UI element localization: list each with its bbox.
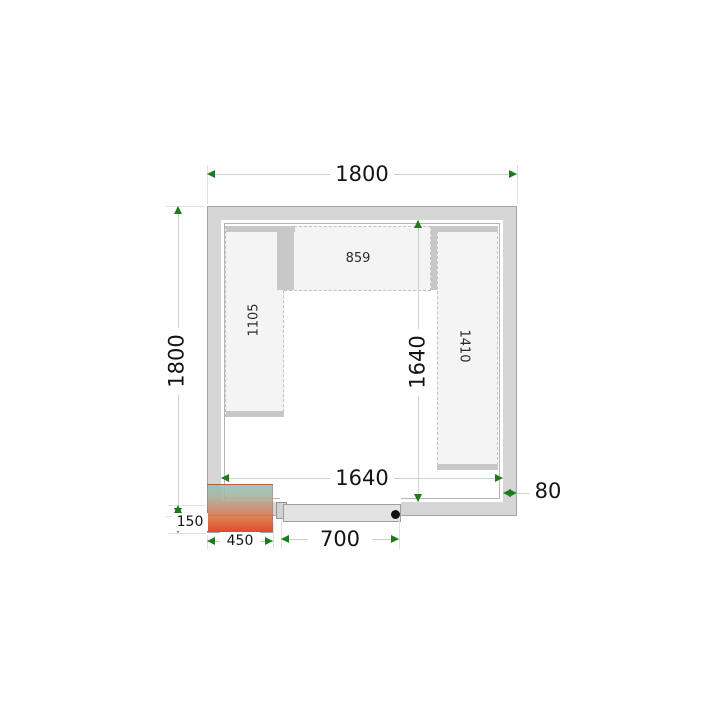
arrow-right-icon <box>509 170 517 178</box>
arrow-left-icon <box>207 170 215 178</box>
shelf-left-length-label: 1105 <box>248 303 261 336</box>
dim-unit-width-label: 450 <box>220 532 260 550</box>
shelf-right-length-label: 1410 <box>458 329 471 362</box>
arrow-left-icon <box>281 535 289 543</box>
dim-inner-height-label: 1640 <box>407 328 430 395</box>
door-handle-dot <box>391 510 400 519</box>
dim-outer-height-label: 1800 <box>166 327 189 394</box>
arrow-right-icon <box>265 537 273 545</box>
door-leaf <box>283 504 401 522</box>
arrow-right-icon <box>495 474 503 482</box>
floor-plan: 1105 859 1410 1800 1800 1640 1640 80 150… <box>0 0 720 720</box>
extension-line <box>517 165 518 204</box>
arrow-up-icon <box>174 206 182 214</box>
extension-line <box>168 533 206 534</box>
extension-line <box>166 206 204 207</box>
extension-line <box>281 519 282 549</box>
cooling-unit-heatmap <box>207 484 273 533</box>
arrow-left-icon <box>221 474 229 482</box>
extension-line <box>399 519 400 549</box>
dim-inner-width-label: 1640 <box>330 466 394 490</box>
arrow-up-icon <box>414 220 422 228</box>
arrow-down-icon <box>414 494 422 502</box>
dim-door-width-label: 700 <box>308 527 372 551</box>
shelf-top-length-label: 859 <box>338 249 378 267</box>
dim-wall-thickness-label: 80 <box>529 479 567 503</box>
arrow-right-icon <box>509 489 517 497</box>
shelf-support-bar <box>431 226 498 232</box>
shelf-support-bar <box>226 411 284 417</box>
shelf-support-bar <box>437 464 498 470</box>
shelf-support-bar <box>431 230 437 290</box>
dim-unit-protrusion-label: 150 <box>172 513 208 531</box>
arrow-right-icon <box>391 535 399 543</box>
dim-outer-width-label: 1800 <box>330 162 394 186</box>
arrow-left-icon <box>207 537 215 545</box>
shelf-support-bar <box>277 230 294 290</box>
extension-line <box>273 523 274 549</box>
arrow-up-icon <box>174 505 182 513</box>
